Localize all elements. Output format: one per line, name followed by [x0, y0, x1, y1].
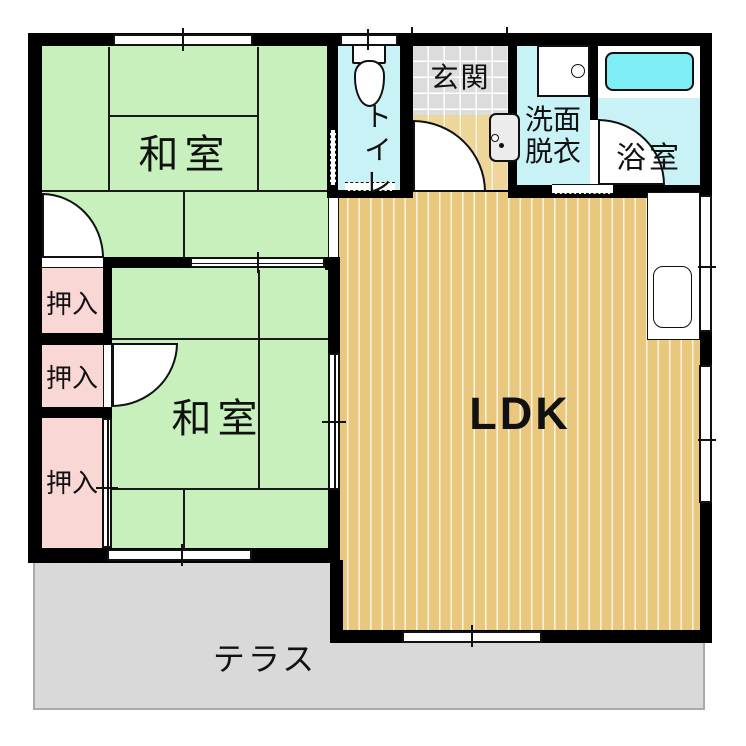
label-bathroom: 浴室	[600, 133, 698, 177]
window-tick	[698, 266, 716, 268]
floor-plan: 和室 和室 LDK トイレ 玄関 洗面 脱衣 浴室 押入 押入 押入 テラス	[0, 0, 746, 746]
tatami-line	[112, 488, 328, 490]
wall-washroom-bathroom	[590, 33, 598, 120]
window-tick	[471, 625, 473, 647]
pocket-door-washroom	[552, 184, 613, 194]
room-terrace-right	[340, 643, 705, 710]
window-tick	[181, 544, 183, 566]
pocket-door-toilet-side	[330, 130, 336, 185]
tatami-line	[257, 47, 259, 190]
label-washroom-line2: 脱衣	[515, 136, 591, 168]
label-washroom-line1: 洗面	[515, 104, 591, 136]
label-genkan: 玄関	[413, 56, 508, 96]
window-tick	[367, 29, 369, 50]
washbasin-drain-icon	[499, 143, 504, 148]
label-washitsu-bottom: 和室	[145, 386, 290, 444]
wall-closet1-bottom	[28, 333, 112, 345]
bathtub-icon	[605, 52, 694, 91]
wall-washitsu2-ldk-upper	[328, 268, 340, 353]
sliding-door-tick	[322, 421, 346, 423]
wall-closet2-bottom	[28, 407, 112, 418]
wall-washitsu-toilet	[327, 33, 338, 130]
doorway-washitsu1-ldk	[328, 198, 339, 257]
window-tick	[182, 28, 184, 51]
genkan-frame-tick	[411, 27, 413, 34]
label-ldk: LDK	[440, 388, 600, 440]
doorway-closet1	[42, 257, 103, 268]
window-washitsu2-terrace	[107, 549, 252, 561]
tatami-line	[258, 270, 260, 488]
window-ldk-right-upper	[699, 195, 712, 332]
label-toilet: トイレ	[356, 96, 396, 206]
label-closet-3: 押入	[38, 463, 106, 500]
washing-machine-dial-icon	[571, 64, 585, 78]
genkan-frame-tick	[506, 27, 508, 34]
kitchen-sink-icon	[653, 266, 692, 328]
tatami-line	[183, 190, 185, 258]
label-closet-2: 押入	[38, 358, 106, 395]
window-tick	[698, 439, 716, 441]
tatami-line	[42, 190, 330, 192]
tatami-line	[183, 488, 185, 548]
wall-ldk-terrace	[330, 560, 343, 643]
wall-washitsu2-ldk-lower	[328, 490, 340, 550]
label-closet-1: 押入	[38, 284, 106, 321]
tatami-line	[112, 338, 328, 340]
washbasin-faucet-icon	[491, 134, 499, 142]
wall-outer-right	[700, 33, 712, 643]
tatami-line	[108, 115, 258, 117]
label-washroom: 洗面 脱衣	[515, 104, 591, 168]
wall-washitsu1-washitsu2	[103, 257, 190, 268]
tatami-line	[108, 47, 110, 190]
window-ldk-right-lower	[699, 365, 712, 503]
label-terrace: テラス	[200, 634, 330, 680]
wall-toilet-genkan	[400, 33, 413, 198]
sliding-door-tick	[257, 252, 259, 273]
label-washitsu-top: 和室	[112, 122, 257, 180]
